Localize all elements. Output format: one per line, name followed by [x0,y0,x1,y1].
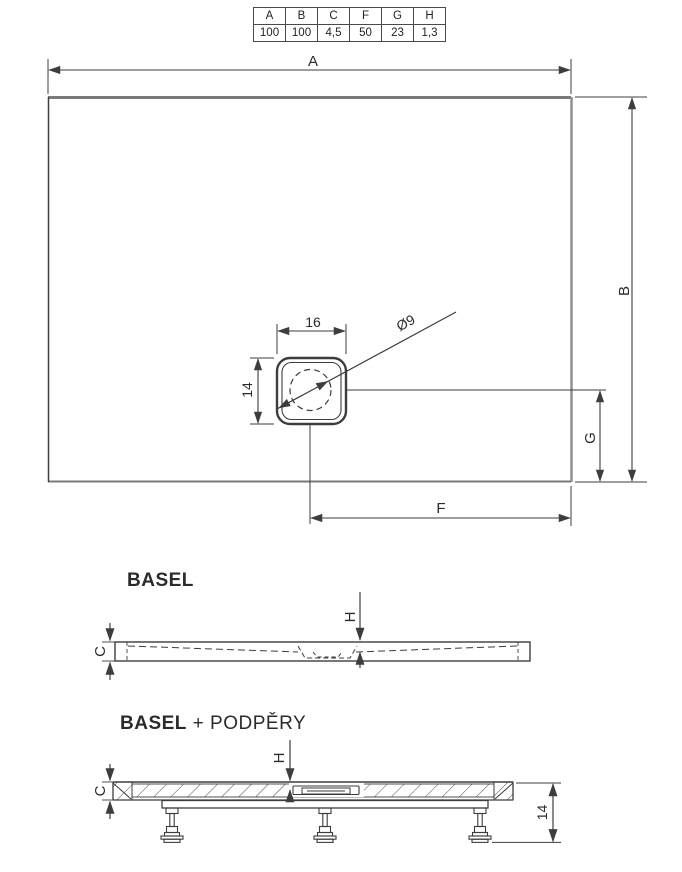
dimension-drain-height: 14 [239,358,274,424]
leg-foot-base [317,839,333,842]
dimension-h-label: H [342,612,359,623]
support-legs [161,808,491,842]
leg-nut-top [166,808,178,814]
tray-profile-outline [115,642,530,661]
dimension-f: F [311,486,571,526]
leg-nut-top [319,808,331,814]
support-frame-bar [162,801,488,809]
support-leg [161,808,183,842]
profile-view-title: BASEL [127,570,194,591]
dimension-14-label: 14 [534,805,550,821]
drain-detail [277,358,346,424]
technical-drawing: A B 16 14 [0,0,682,872]
slope-line-left [128,646,298,652]
dimension-14-label: 14 [239,382,255,398]
leg-rod [170,814,174,827]
dimension-c-label: C [92,646,109,657]
support-view-title: BASEL + PODPĚRY [120,712,306,734]
leg-adjuster [475,827,486,833]
dimension-16-label: 16 [305,314,321,330]
leg-rod [323,814,327,827]
dimension-g: G [582,391,600,481]
drain-trap-inner-hidden [313,652,342,657]
dimension-h-label: H [271,753,288,764]
leg-rod [478,814,482,827]
slope-line-right [356,646,517,652]
top-view: A B 16 14 [48,53,647,526]
support-view-title-model: BASEL [120,713,187,734]
dimension-b-label: B [616,286,633,296]
support-view: BASEL + PODPĚRY [92,712,561,842]
dimension-c-profile: C [92,623,117,680]
dimension-a: A [48,53,571,94]
support-leg [314,808,336,842]
dimension-drain-width: 16 [277,314,346,354]
dimension-g-label: G [582,432,599,444]
profile-view: BASEL H C [92,570,530,680]
dimension-a-label: A [308,53,318,70]
leg-adjuster [320,827,331,833]
dimension-c-label: C [92,785,109,796]
drain-flange-outer [277,358,346,424]
support-view-title-suffix: + PODPĚRY [187,712,306,734]
drain-trap-hidden [298,646,357,658]
tray-section [113,782,513,800]
leg-nut-top [474,808,486,814]
dimension-f-label: F [436,500,445,517]
diameter-label: Ø9 [394,311,418,334]
dimension-b: B [575,97,647,482]
leg-foot-base [164,839,180,842]
leg-adjuster [167,827,178,833]
leg-foot-base [472,839,488,842]
support-leg [469,808,491,842]
